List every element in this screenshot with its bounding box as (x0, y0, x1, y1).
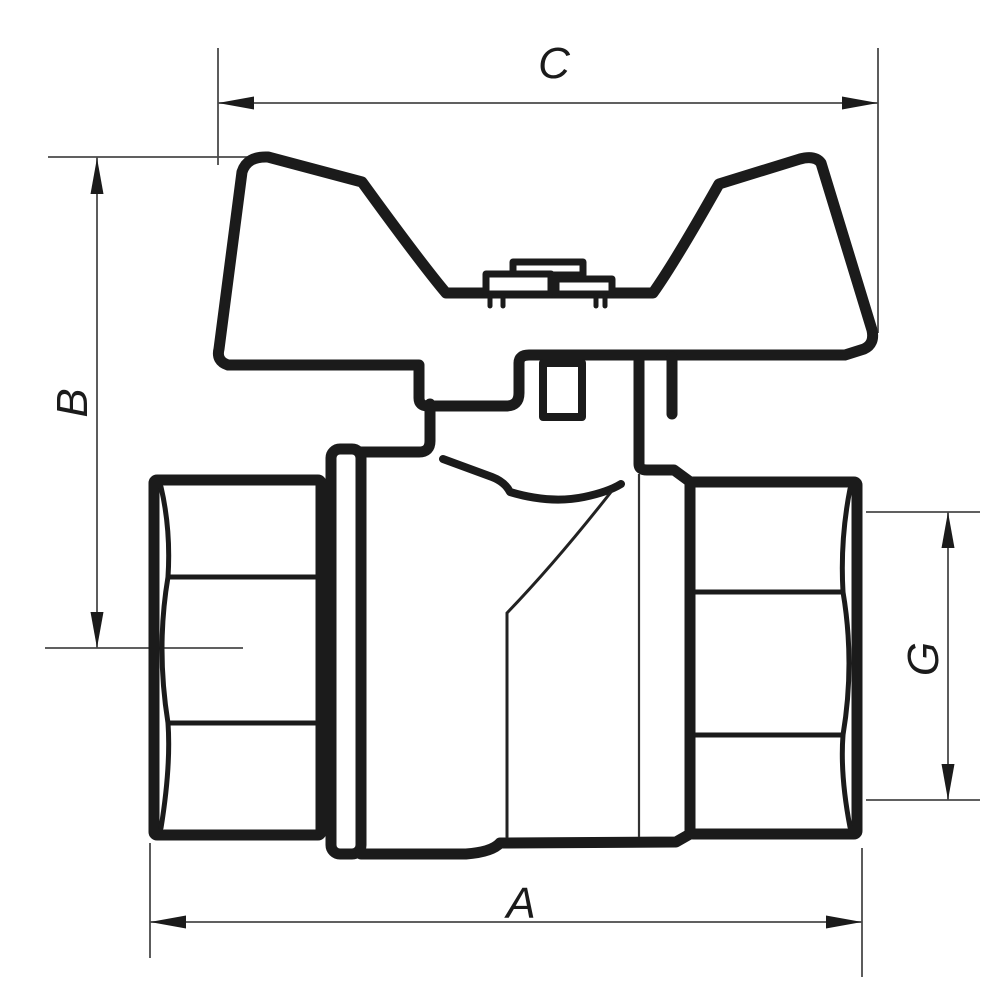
valve-body (154, 355, 857, 854)
arrowhead-up (91, 158, 104, 194)
dimension-a-bottom-width: A (150, 843, 862, 977)
dim-label-b: B (48, 388, 97, 417)
right-hex-chamfer-arc (843, 592, 849, 735)
ball-housing-seam (507, 492, 611, 837)
left-hex-chamfer-arc (161, 723, 169, 828)
right-hex-chamfer-arc (842, 735, 850, 827)
stem-square (543, 363, 582, 417)
arrowhead-up (942, 512, 955, 548)
left-hex-nut-outline (154, 480, 321, 835)
arrowhead-down (91, 612, 104, 648)
right-hex-nut-outline (690, 482, 857, 834)
right-hex-chamfer-arc (842, 489, 850, 592)
valve-drawing: C B A G (0, 0, 1000, 1000)
hub-cap-lower-plate-right (556, 279, 612, 294)
body-shoulder-contour (443, 459, 621, 500)
dimension-g-thread-size: G (866, 512, 980, 800)
arrowhead-right (826, 916, 862, 929)
butterfly-handle (218, 157, 872, 417)
arrowhead-left (218, 97, 254, 110)
technical-drawing-canvas: C B A G (0, 0, 1000, 1000)
body-bottom-edge (361, 834, 690, 854)
body-collar-ring (331, 449, 361, 854)
left-hex-chamfer-arc (162, 577, 168, 723)
dim-label-c: C (538, 39, 571, 88)
left-hex-chamfer-arc (161, 487, 169, 577)
arrowhead-left (150, 916, 186, 929)
dim-label-a: A (503, 879, 535, 928)
body-right-step (639, 355, 689, 481)
arrowhead-right (842, 97, 878, 110)
dim-label-g: G (899, 642, 948, 676)
hub-cap-lower-plate-left (486, 274, 551, 294)
body-shoulder-left-edge (361, 404, 430, 452)
arrowhead-down (942, 764, 955, 800)
